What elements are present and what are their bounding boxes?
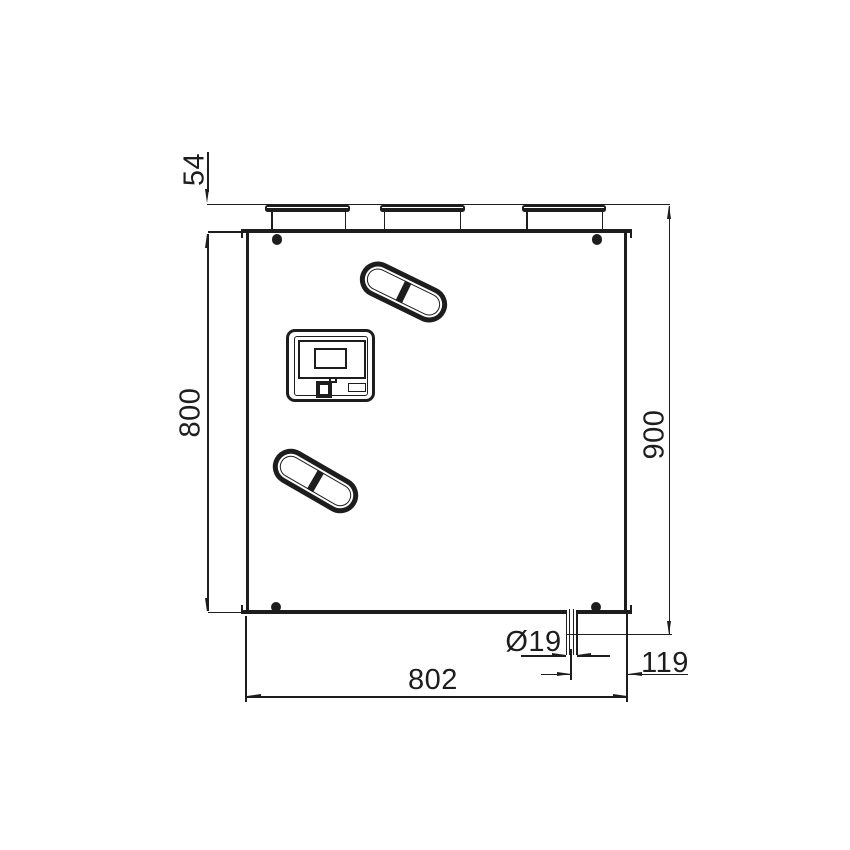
dim-802-ext-left	[245, 616, 246, 702]
collar-seal-gap	[382, 207, 463, 208]
dim-label-drain-offset: 119	[615, 649, 715, 678]
dim-label-drain-diameter: Ø19	[484, 628, 584, 657]
top-plate-edge	[241, 229, 632, 233]
dim-800-line	[207, 234, 208, 611]
dim-label-total-height: 900	[641, 394, 670, 474]
screw-top-right	[592, 234, 603, 245]
dim-label-body-height: 800	[176, 372, 205, 452]
dim-802-line	[247, 696, 626, 697]
collar-wall	[271, 212, 273, 232]
collar-wall	[460, 212, 462, 232]
dim-800-ext-bottom	[208, 612, 246, 613]
top-right-step	[630, 229, 632, 238]
technical-drawing-canvas: 54 800 900 802 119 Ø19	[0, 0, 850, 850]
panel-label-slot	[348, 383, 366, 393]
screw-top-left	[272, 234, 283, 245]
collar-seal-gap	[524, 207, 605, 208]
dim-802-arrow-right	[613, 694, 627, 698]
bottom-right-step	[630, 605, 632, 614]
dim-800-ext-top	[208, 231, 246, 232]
dim-800-arrow-bottom	[205, 598, 209, 612]
dim-900-arrow-top	[667, 205, 671, 219]
collar-seal-gap	[267, 207, 348, 208]
dim-119-arrow-left	[557, 672, 571, 676]
panel-button	[316, 381, 332, 398]
dim-802-arrow-left	[247, 694, 261, 698]
display-screen	[314, 348, 347, 370]
collar-wall	[602, 212, 604, 232]
collar-wall	[345, 212, 347, 232]
collar-wall	[384, 212, 386, 232]
dim-900-arrow-bottom	[667, 621, 671, 635]
dim-label-body-width: 802	[373, 666, 493, 695]
collar-wall	[526, 212, 528, 232]
dim-label-collar-height: 54	[180, 129, 209, 209]
dim-800-arrow-top	[205, 234, 209, 248]
